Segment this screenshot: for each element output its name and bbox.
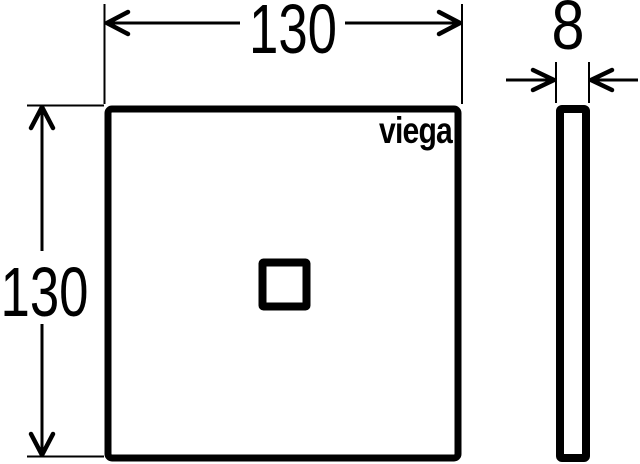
front-view: viega: [108, 109, 458, 458]
technical-drawing: viega 130 130: [0, 0, 640, 464]
width-dimension-value: 130: [249, 0, 337, 68]
thickness-dimension: 8: [506, 0, 638, 103]
height-dimension-value: 130: [1, 253, 89, 331]
width-dimension: 130: [105, 0, 463, 104]
side-profile-outline: [560, 109, 586, 458]
drawing-canvas: viega 130 130: [0, 0, 640, 464]
thickness-dimension-value: 8: [552, 0, 585, 64]
brand-logo: viega: [379, 110, 453, 151]
side-view: [560, 109, 586, 458]
height-dimension: 130: [1, 106, 105, 457]
center-button-outline: [263, 263, 307, 307]
